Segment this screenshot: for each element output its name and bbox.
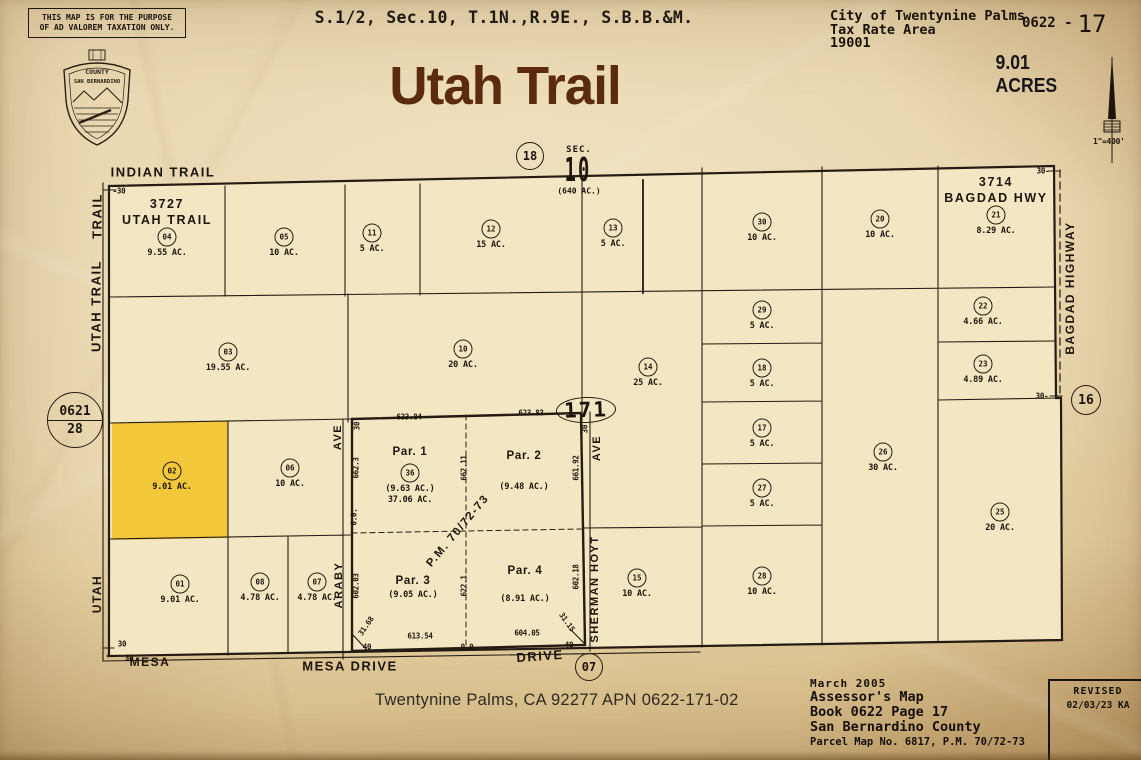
- revised-date: 02/03/23 KA: [1050, 700, 1141, 711]
- revised-label: REVISED: [1050, 686, 1141, 697]
- parcel-03-number: 03: [219, 343, 238, 362]
- apn-label: APN 0622-171-02: [602, 691, 739, 710]
- parcel-23-number: 23: [974, 355, 993, 374]
- parcel-04-tract-number: 3727: [150, 197, 184, 211]
- parcel-21-number: 21: [987, 206, 1006, 225]
- dimension-label: 31.68: [356, 615, 375, 637]
- pm-parcel-label: Par. 2: [507, 450, 542, 462]
- parcel-23-acreage: 4.89 AC.: [963, 375, 1002, 385]
- parcel-05-acreage: 10 AC.: [269, 248, 299, 258]
- assessor-map-title: Assessor's Map: [810, 690, 1025, 705]
- address-label: Twentynine Palms, CA 92277: [375, 691, 598, 710]
- dimension-label: 604.05: [514, 629, 539, 638]
- road-label: MESA: [130, 655, 171, 669]
- pm-parcel-label: Par. 1: [393, 446, 428, 458]
- parcel-26-number: 26: [874, 443, 893, 462]
- road-label: P.M. 70/72-73: [424, 493, 491, 570]
- parcel-22-number: 22: [974, 297, 993, 316]
- parcel-18-number: 18: [753, 359, 772, 378]
- parcel-25-acreage: 20 AC.: [985, 523, 1015, 533]
- parcel-36-number: 36: [401, 464, 420, 483]
- road-label: TRAIL: [90, 193, 105, 239]
- pm-parcel-label: 37.06 AC.: [388, 495, 432, 505]
- road-label: UTAH: [90, 575, 104, 613]
- parcel-04-acreage: 9.55 AC.: [147, 248, 186, 258]
- dimension-label: 613.54: [407, 632, 432, 641]
- parcel-04-tract-name: UTAH TRAIL: [122, 213, 212, 227]
- road-label: MESA DRIVE: [302, 659, 397, 674]
- pm-parcel-label: (9.05 AC.): [388, 590, 437, 600]
- parcel-02-acreage: 9.01 AC.: [152, 482, 191, 492]
- parcel-11-acreage: 5 AC.: [360, 244, 385, 254]
- dimension-label: 602.03: [352, 573, 361, 598]
- parcel-12-acreage: 15 AC.: [476, 240, 506, 250]
- parcel-26-acreage: 30 AC.: [868, 463, 898, 473]
- parcel-28-acreage: 10 AC.: [747, 587, 777, 597]
- parcel-15-acreage: 10 AC.: [622, 589, 652, 599]
- parcel-18-acreage: 5 AC.: [750, 379, 775, 389]
- parcel-04-number: 04: [158, 228, 177, 247]
- parcel-10-number: 10: [454, 340, 473, 359]
- road-label: AVE: [332, 424, 344, 450]
- pm-parcel-label: (8.91 AC.): [500, 594, 549, 604]
- parcel-15-number: 15: [628, 569, 647, 588]
- parcel-22-acreage: 4.66 AC.: [963, 317, 1002, 327]
- parcel-07-number: 07: [308, 573, 327, 592]
- parcel-20-acreage: 10 AC.: [865, 230, 895, 240]
- dimension-label: 31.15: [557, 611, 576, 633]
- parcel-12-number: 12: [482, 220, 501, 239]
- assessor-map-page: COUNTY SAN BERNARDINO THIS MAP IS FOR TH…: [0, 0, 1141, 760]
- road-label: SHERMAN HOYT: [589, 535, 601, 642]
- parcel-30-number: 30: [753, 213, 772, 232]
- parcel-14-acreage: 25 AC.: [633, 378, 663, 388]
- dimension-label: 633.84: [396, 413, 421, 422]
- road-label: BAGDAD HIGHWAY: [1063, 221, 1077, 354]
- road-label: DRIVE: [516, 647, 564, 665]
- dimension-label: 662.3: [352, 457, 361, 478]
- parcel-29-acreage: 5 AC.: [750, 321, 775, 331]
- parcel-21-acreage: 8.29 AC.: [976, 226, 1015, 236]
- parcel-30-acreage: 10 AC.: [747, 233, 777, 243]
- parcel-08-acreage: 4.78 AC.: [240, 593, 279, 603]
- parcel-11-number: 11: [363, 224, 382, 243]
- road-label: INDIAN TRAIL: [111, 165, 216, 180]
- pm-parcel-label: (9.63 AC.): [385, 484, 434, 494]
- dimension-label: 622.1: [460, 575, 469, 596]
- dimension-label: 30-: [1037, 167, 1050, 176]
- parcel-20-number: 20: [871, 210, 890, 229]
- parcel-06-number: 06: [281, 459, 300, 478]
- parcel-17-number: 17: [753, 419, 772, 438]
- county-line: San Bernardino County: [810, 720, 1025, 735]
- parcel-21-tract-name: BAGDAD HWY: [944, 191, 1048, 205]
- road-label: UTAH TRAIL: [89, 260, 104, 352]
- parcel-29-number: 29: [753, 301, 772, 320]
- parcel-28-number: 28: [753, 567, 772, 586]
- dimension-label: 661.92: [572, 455, 581, 480]
- parcel-03-acreage: 19.55 AC.: [206, 363, 250, 373]
- dimension-label: 0.0.: [350, 509, 359, 526]
- assessor-map-block: March 2005 Assessor's Map Book 0622 Page…: [810, 677, 1025, 749]
- dimension-label: 30: [581, 425, 590, 433]
- parcel-01-acreage: 9.01 AC.: [160, 595, 199, 605]
- dimension-label: -30: [113, 187, 126, 196]
- dimension-label: 40: [363, 643, 371, 652]
- parcel-map-reference: Parcel Map No. 6817, P.M. 70/72-73: [810, 735, 1025, 749]
- parcel-14-number: 14: [639, 358, 658, 377]
- pm-parcel-label: (9.48 AC.): [499, 482, 548, 492]
- dimension-label: 30-: [1036, 392, 1049, 401]
- pm-parcel-label: Par. 4: [508, 565, 543, 577]
- parcel-25-number: 25: [991, 503, 1010, 522]
- parcel-01-number: 01: [171, 575, 190, 594]
- dimension-label: 40: [565, 641, 573, 650]
- dimension-label: 30: [353, 422, 362, 430]
- revised-box: REVISED 02/03/23 KA: [1048, 679, 1141, 760]
- parcel-07-acreage: 4.78 AC.: [297, 593, 336, 603]
- parcel-08-number: 08: [251, 573, 270, 592]
- parcel-27-acreage: 5 AC.: [750, 499, 775, 509]
- dimension-label: 602.18: [572, 564, 581, 589]
- parcel-17-acreage: 5 AC.: [750, 439, 775, 449]
- map-labels-layer: 3727UTAH TRAIL049.55 AC.0510 AC.115 AC.1…: [0, 0, 1141, 760]
- parcel-13-number: 13: [604, 219, 623, 238]
- parcel-06-acreage: 10 AC.: [275, 479, 305, 489]
- dimension-label: 0.0: [461, 643, 474, 652]
- pm-parcel-label: Par. 3: [396, 575, 431, 587]
- dimension-label: 662.11: [460, 455, 469, 480]
- parcel-21-tract-number: 3714: [979, 175, 1013, 189]
- road-label: AVE: [591, 435, 603, 461]
- dimension-label: 30: [118, 640, 126, 649]
- parcel-02-number: 02: [163, 462, 182, 481]
- road-label: ARABY: [333, 562, 345, 609]
- dimension-label: 623.83: [518, 409, 543, 418]
- parcel-13-acreage: 5 AC.: [601, 239, 626, 249]
- book-page-line: Book 0622 Page 17: [810, 705, 1025, 720]
- parcel-27-number: 27: [753, 479, 772, 498]
- parcel-05-number: 05: [275, 228, 294, 247]
- parcel-10-acreage: 20 AC.: [448, 360, 478, 370]
